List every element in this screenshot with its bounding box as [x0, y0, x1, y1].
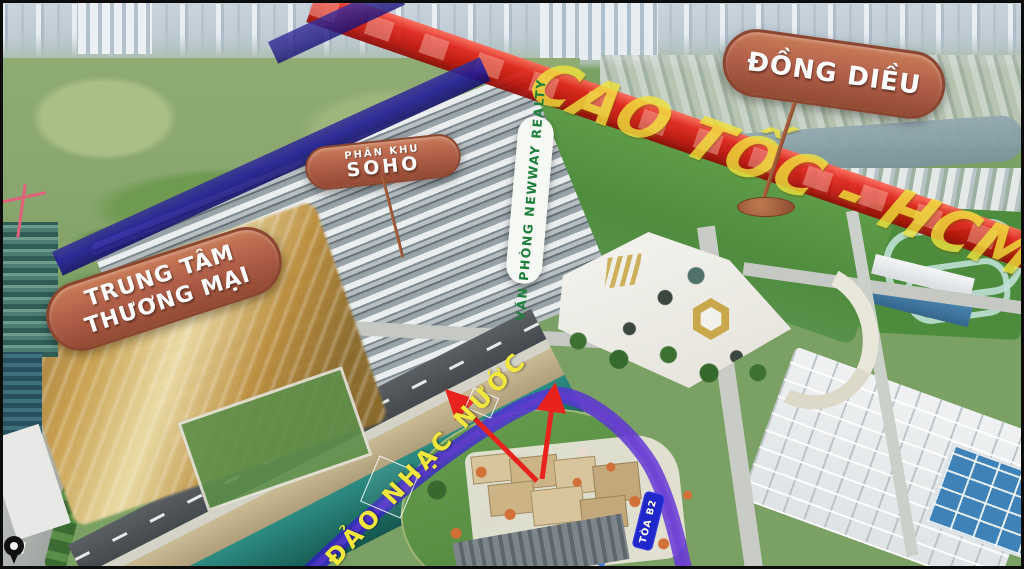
- roof-logo-glyph: [605, 253, 642, 288]
- aerial-masterplan-image: CAO TỐC - HCM ĐẢO NHẠC NƯỚC ĐỒNG DIỀU PH…: [0, 0, 1024, 569]
- location-pin-tail: [9, 552, 19, 564]
- glass-tower: [0, 222, 58, 357]
- location-pin-icon: [4, 536, 26, 566]
- dong-dieu-label: ĐỒNG DIỀU: [745, 47, 923, 101]
- skyline-tower-cluster: [78, 2, 152, 54]
- dong-dieu-pin-base: [737, 197, 795, 217]
